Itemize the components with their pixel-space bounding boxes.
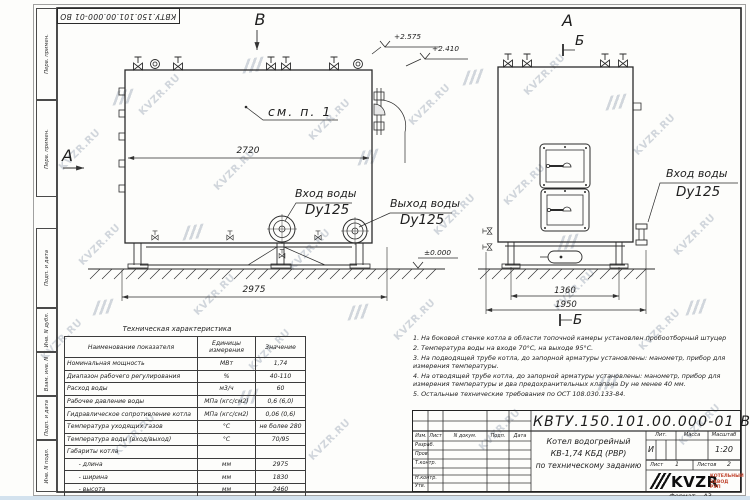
col-ndoc: N докум. — [443, 434, 487, 439]
margin-cell: Инв. N дубл. — [36, 308, 57, 352]
table-row: Температура уходящих газов°Сне более 280 — [65, 420, 306, 433]
note-line: 5. Остальные технические требования по О… — [413, 390, 745, 398]
scale-label: Масштаб — [708, 433, 740, 438]
inlet-water-dn: Dy125 — [305, 204, 349, 218]
table-row: Температура воды (вход/выход)°С70/95 — [65, 433, 306, 446]
note-line: 2. Температура воды на входе 70°С, на вы… — [413, 344, 745, 352]
sheets-value: 2 — [727, 462, 731, 468]
margin-label: Взам. инв. N — [44, 357, 50, 391]
elevation-2410: +2.410 — [432, 45, 459, 52]
row-nkontr: Н.контр. — [415, 476, 437, 481]
note-line: 1. На боковой стенке котла в области топ… — [413, 334, 745, 342]
margin-label: Перв. примен. — [44, 34, 50, 74]
margin-cell: Подп. и дата — [36, 396, 57, 440]
sheet-value: 1 — [675, 462, 679, 468]
sheets-label: Листов — [697, 463, 716, 468]
spec-table-block: Техническая характеристика Наименование … — [64, 325, 290, 497]
dim-1360: 1360 — [554, 287, 576, 296]
spec-header: Единицы измерения — [198, 337, 256, 358]
product-name-line2: КВ-1,74 КБД (РВР) — [533, 450, 644, 458]
spec-header: Наименование показателя — [65, 337, 198, 358]
table-row: Диапазон рабочего регулирования%40-110 — [65, 370, 306, 383]
sheet-label: Лист — [650, 463, 663, 468]
margin-label: Инв. N дубл. — [44, 313, 50, 348]
table-row: Рабочее давление водыМПа (кгс/см2)0,6 (6… — [65, 395, 306, 408]
outlet-water-dn: Dy125 — [400, 214, 444, 228]
dim-1950: 1950 — [555, 301, 577, 310]
dim-2720: 2720 — [237, 147, 260, 156]
kvzr-logo-subtitle1: КОТЕЛЬНЫЙ — [710, 474, 744, 479]
note-line: 4. На отводящей трубе котла, до запорной… — [413, 372, 745, 389]
spec-table-title: Техническая характеристика — [64, 325, 290, 333]
kvzr-logo-subtitle2: ЗАВОД РЭП — [710, 480, 740, 491]
elevation-2575: +2.575 — [394, 33, 421, 40]
inlet-water-label: Вход воды — [295, 188, 356, 199]
scale-value: 1:20 — [708, 446, 740, 454]
row-utv: Утв. — [415, 484, 425, 489]
margin-label: Подп. и дата — [44, 400, 50, 436]
table-row: Габариты котла — [65, 446, 306, 459]
margin-label: Подп. и дата — [44, 250, 50, 286]
margin-cell: Подп. и дата — [36, 228, 57, 308]
technical-notes: 1. На боковой стенке котла в области топ… — [413, 334, 745, 400]
col-data: Дата — [509, 434, 531, 439]
view-arrow-label-a: А — [62, 148, 73, 164]
margin-cell: Взам. инв. N — [36, 352, 57, 396]
col-izm: Изм. — [414, 434, 428, 439]
product-name-line1: Котел водогрейный — [533, 438, 644, 446]
elevation-zero: ±0.000 — [424, 249, 451, 256]
title-block: КВТУ.150.101.00.000-01 ВО Изм. Лист N до… — [412, 410, 741, 492]
window-edge-strip — [0, 496, 750, 500]
margin-cell: Инв. N подл. — [36, 440, 57, 492]
section-label-b-top: Б — [575, 35, 584, 49]
margin-cell: Перв. примен. — [36, 100, 57, 197]
table-row: - ширинамм1830 — [65, 471, 306, 484]
col-podp: Подп. — [487, 434, 509, 439]
doc-number-flipped: КВТУ.150.101.00.000-01 ВО — [60, 12, 176, 21]
note-line: 3. На подводящей трубе котла, до запорно… — [413, 354, 745, 371]
table-row: Расход водым3/ч60 — [65, 383, 306, 396]
front-inlet-water-label: Вход воды — [666, 168, 727, 179]
spec-header: Значение — [256, 337, 306, 358]
margin-label: Перв. примен. — [44, 129, 50, 169]
dim-2975: 2975 — [243, 286, 266, 295]
margin-cell: Перв. примен. — [36, 8, 57, 100]
table-row: Номинальная мощностьМВт1,74 — [65, 358, 306, 371]
table-row: - высотамм2460 — [65, 483, 306, 496]
title-block-doc-number: КВТУ.150.101.00.000-01 ВО — [533, 415, 740, 429]
callout-see-item-1: см. п. 1 — [268, 106, 332, 119]
product-name-line3: по техническому заданию — [533, 462, 644, 470]
mass-label: Масса — [676, 433, 708, 438]
drawing-sheet: KVZR.RU KVZR.RU KVZR.RU KVZR.RU KVZR.RU … — [0, 0, 750, 500]
section-label-b-bottom: Б — [573, 314, 582, 328]
row-tkontr: Т.контр. — [415, 461, 436, 466]
lit-value: И — [646, 446, 656, 454]
row-razrab: Разраб. — [415, 443, 434, 448]
front-inlet-water-dn: Dy125 — [676, 186, 720, 200]
view-title-a: А — [562, 13, 573, 29]
view-arrow-label-v: В — [255, 12, 266, 28]
margin-label: Инв. N подл. — [44, 449, 50, 484]
col-list: Лист — [428, 434, 443, 439]
outlet-water-label: Выход воды — [390, 198, 460, 209]
doc-number-flipped-box: КВТУ.150.101.00.000-01 ВО — [57, 8, 180, 24]
row-prov: Пров. — [415, 452, 429, 457]
spec-table: Наименование показателя Единицы измерени… — [64, 336, 306, 497]
lit-label: Лит. — [646, 433, 676, 438]
table-row: Гидравлическое сопротивление котлаМПа (к… — [65, 408, 306, 421]
side-view-linework — [63, 30, 468, 301]
table-row: - длинамм2975 — [65, 458, 306, 471]
